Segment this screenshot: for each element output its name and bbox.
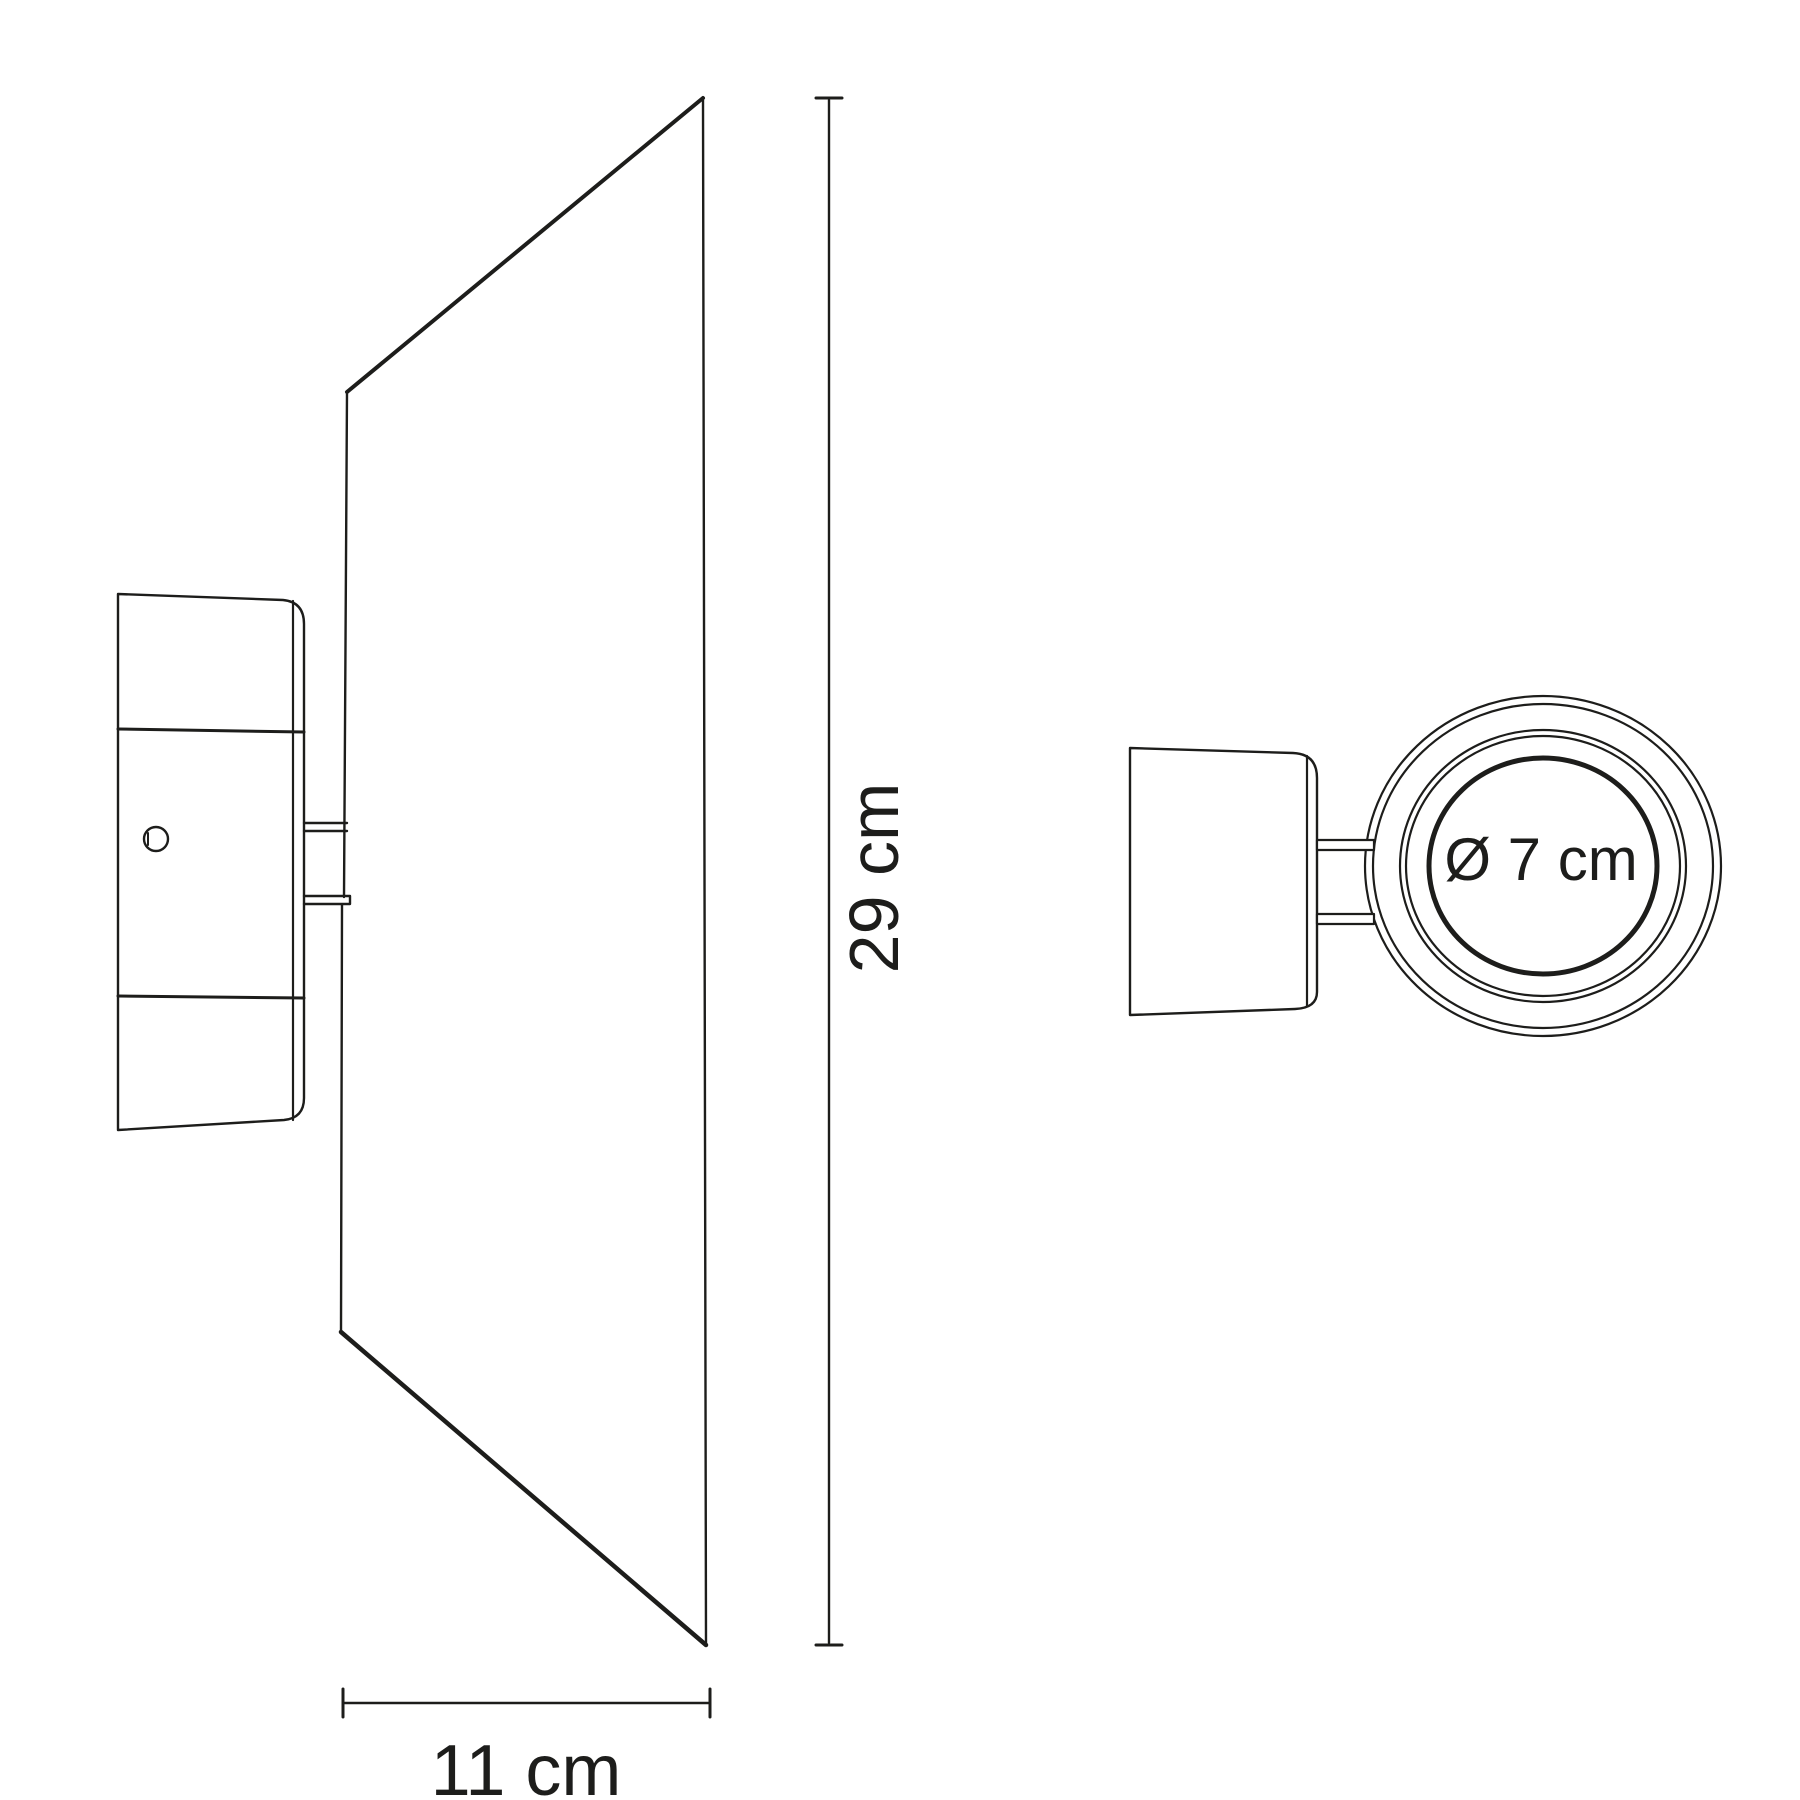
arm-upper-bar: [1317, 840, 1374, 850]
wall-plate-front: [1130, 748, 1317, 1015]
diagram-page: 29 cm 11 cm Ø 7 cm: [0, 0, 1800, 1800]
wall-lamp-dimension-diagram: 29 cm 11 cm Ø 7 cm: [0, 0, 1800, 1800]
diameter-dimension-label: Ø 7 cm: [1444, 826, 1637, 893]
front-view-figure: Ø 7 cm: [1130, 696, 1721, 1036]
side-view-figure: 29 cm 11 cm: [118, 98, 913, 1800]
wall-bracket: [118, 594, 304, 1130]
depth-dimension-label: 11 cm: [431, 1731, 622, 1800]
shade-top-edge: [347, 98, 703, 392]
shade-left-edge: [341, 392, 347, 1332]
arm-lower-bar: [1317, 914, 1374, 924]
bracket-body: [118, 594, 304, 1130]
plate-body: [1130, 748, 1317, 1015]
height-dimension-label: 29 cm: [835, 783, 913, 974]
arm-top-flange: [304, 823, 347, 831]
arm-bottom-flange: [304, 896, 350, 904]
shade-front-edge: [703, 98, 706, 1645]
shade-side-outline: [341, 98, 706, 1645]
bracket-bottom-band-line: [118, 996, 304, 998]
depth-dimension: 11 cm: [343, 1689, 710, 1800]
shade-bottom-edge: [341, 1332, 706, 1645]
height-dimension: 29 cm: [816, 98, 913, 1645]
